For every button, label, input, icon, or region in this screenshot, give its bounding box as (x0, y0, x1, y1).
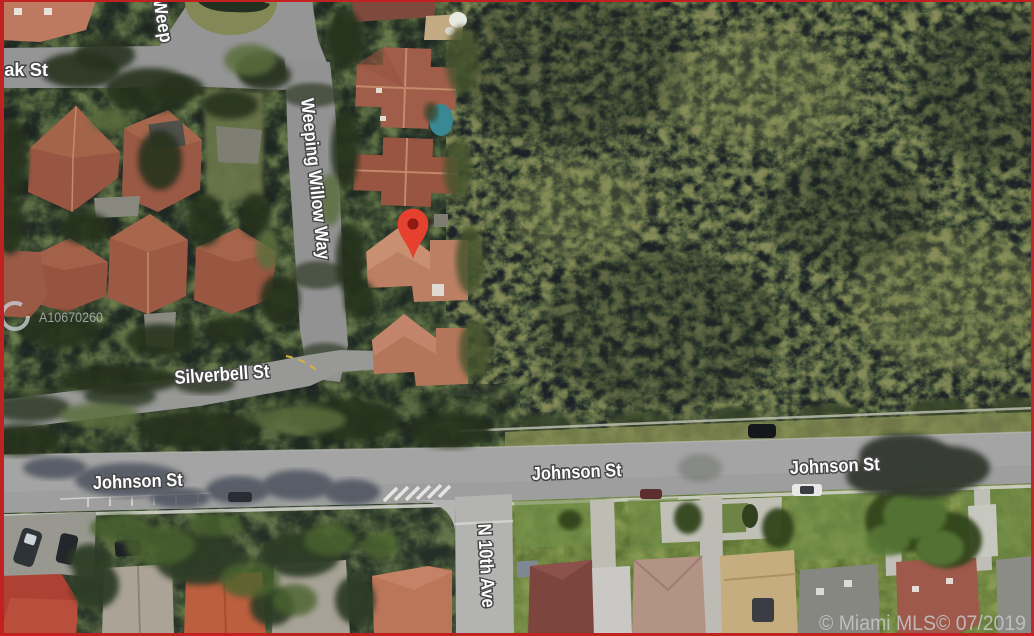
svg-text:Johnson St: Johnson St (92, 469, 183, 493)
svg-text:A10670260: A10670260 (39, 310, 103, 325)
svg-text:Oak St: Oak St (0, 59, 48, 80)
svg-text:N 10th Ave: N 10th Ave (473, 523, 498, 608)
svg-text:Johnson St: Johnson St (789, 453, 880, 478)
svg-text:© Miami MLS© 07/2019: © Miami MLS© 07/2019 (819, 612, 1026, 635)
svg-text:Johnson St: Johnson St (531, 459, 622, 484)
